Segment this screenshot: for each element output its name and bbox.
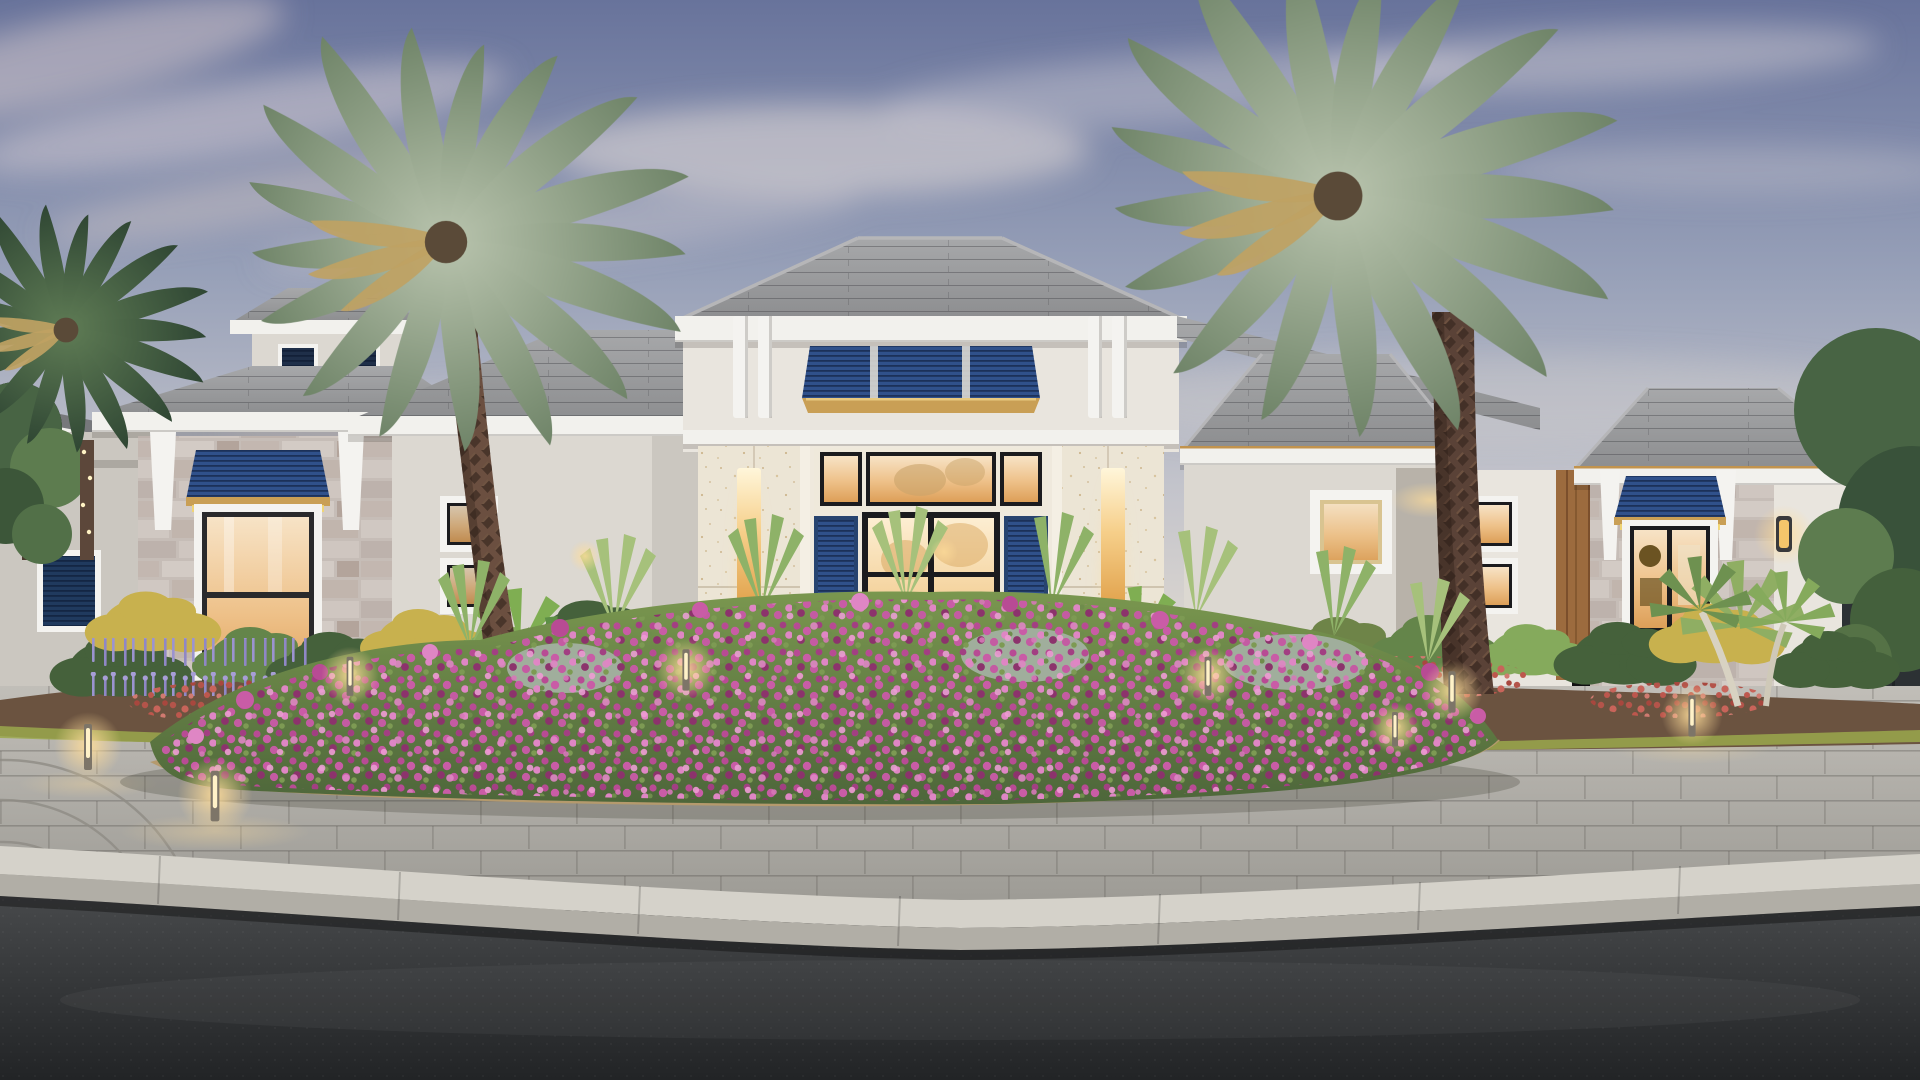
bollard-light	[54, 712, 122, 780]
rendering-scene	[0, 0, 1920, 1080]
rendering-canvas	[0, 0, 1920, 1080]
bollard-light	[1179, 647, 1237, 705]
transom-small	[1000, 452, 1042, 506]
entry-head-trim	[683, 430, 1179, 444]
bollard-light	[1661, 684, 1722, 745]
mid-left-fascia	[348, 416, 700, 436]
louvered-awning-band	[802, 346, 1040, 413]
transom-wide	[866, 452, 996, 506]
bollard-light	[178, 758, 253, 833]
bollard-light	[655, 638, 716, 699]
bollard-light	[1421, 660, 1482, 721]
transom-windows	[814, 448, 1048, 512]
bollard-light	[1370, 703, 1421, 754]
right-fascia	[1180, 446, 1470, 465]
bahama-awning-left	[186, 450, 330, 512]
bollard-light	[321, 647, 379, 705]
tower-fascia	[675, 316, 1187, 342]
transom-small	[820, 452, 862, 506]
